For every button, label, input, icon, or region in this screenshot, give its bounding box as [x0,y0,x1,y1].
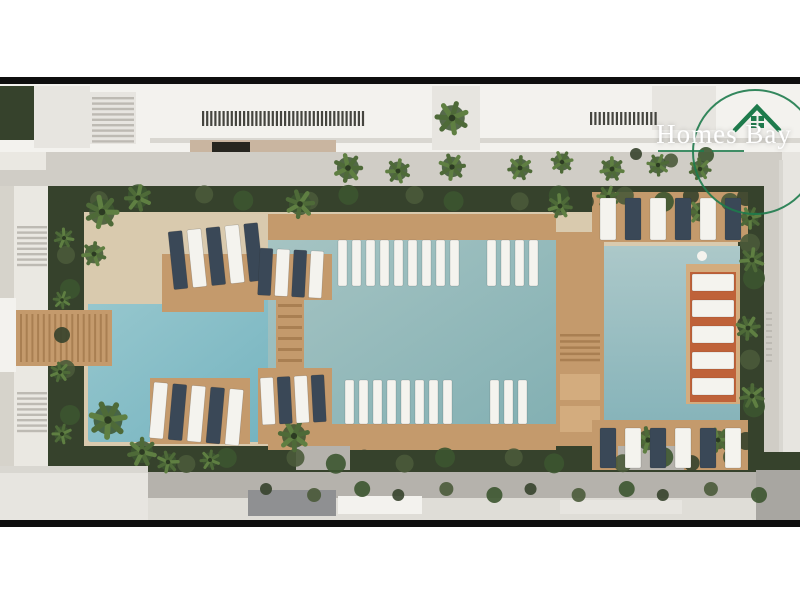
sun-lounger [650,198,666,240]
sun-lounger [625,198,641,240]
white-rooftop-2 [560,500,682,514]
bush [396,455,414,473]
sun-lounger [675,198,691,240]
sun-lounger [515,240,524,286]
bush [392,489,404,501]
walkway-top-left [0,152,46,170]
trees-top-left [0,86,34,140]
screenshot-root: Homes Bay [0,0,800,600]
bush [338,185,358,205]
bush [52,186,68,202]
sun-lounger [429,380,438,424]
bush [465,455,481,471]
sun-lounger [725,198,741,240]
sun-lounger [387,380,396,424]
bush [572,488,586,502]
bush [575,449,591,465]
sun-lounger [415,380,424,424]
sun-lounger [487,240,496,286]
sun-lounger-group-inpool-bottom-b [490,380,527,424]
bottom-margin [0,527,800,600]
sun-lounger [260,377,275,425]
bush [260,483,272,495]
sun-lounger [352,240,361,286]
sun-lounger [291,250,306,298]
bush [444,191,464,211]
bush [751,487,767,503]
pool-side-table [697,251,707,261]
sun-lounger [625,428,641,468]
sun-lounger [401,380,410,424]
bush [356,450,372,466]
central-deck-top [268,214,556,240]
sun-lounger [338,240,347,286]
bush [54,201,70,217]
bush [544,453,564,473]
sun-lounger [692,274,734,291]
bush [740,234,760,254]
bush [54,327,70,343]
sun-lounger [490,380,499,424]
small-building-top-left [34,86,90,148]
sun-lounger [700,198,716,240]
building-bottom-left [0,466,148,520]
bush [57,246,75,264]
sun-lounger [600,198,616,240]
bush [157,192,173,208]
bush [505,448,523,466]
bush [354,481,370,497]
sun-lounger [692,326,734,343]
sun-lounger [600,428,616,468]
white-rooftop-1 [338,496,422,514]
bush [247,456,263,472]
sun-lounger [422,240,431,286]
sun-lounger [725,428,741,468]
sun-lounger [504,380,513,424]
sun-lounger [275,249,290,297]
sun-lounger [408,240,417,286]
bush [578,194,594,210]
sun-lounger-group-left-notch [149,382,244,446]
bush [740,350,760,370]
sun-lounger [345,380,354,424]
sun-lounger [436,240,445,286]
bush [307,488,321,502]
stripe-texture [92,97,134,143]
bush [704,482,718,496]
bush [630,148,642,160]
sun-lounger [692,352,734,369]
sun-lounger [380,240,389,286]
bush [657,489,669,501]
building-bottom-left-roofline [0,466,148,473]
bush [486,487,502,503]
sun-lounger [501,240,510,286]
sun-lounger [359,380,368,424]
bush [60,405,80,425]
bush [439,482,453,496]
sun-lounger [692,300,734,317]
sun-lounger [692,378,734,395]
sun-lounger [650,428,666,468]
aerial-render-pool-complex [0,0,800,600]
sun-lounger [308,251,323,299]
rooftop-structure [248,490,336,516]
sun-lounger [294,376,309,424]
sun-lounger [450,240,459,286]
bush [233,191,253,211]
sun-lounger [311,375,326,423]
stripe-texture [766,312,772,362]
corner-roof [652,86,716,130]
sun-lounger [700,428,716,468]
render-area [0,84,800,521]
bush [177,455,195,473]
sun-lounger [277,376,292,424]
bush [367,193,383,209]
bush [406,186,424,204]
corner-vegetation [756,452,800,472]
bush [473,187,489,203]
sun-lounger-group-inpool-top-a [338,240,459,286]
sun-lounger [394,240,403,286]
bush [435,448,455,468]
bush [195,185,213,203]
bush [326,454,346,474]
walkway-landing [0,298,16,372]
sun-lounger [675,428,691,468]
sun-lounger [443,380,452,424]
sun-lounger [518,380,527,424]
bush [525,483,537,495]
separator-platform-1 [560,374,600,400]
bush [262,187,278,203]
bush [619,481,635,497]
sun-lounger [373,380,382,424]
sun-lounger [529,240,538,286]
bottom-frame-bar [0,520,800,527]
bush [54,441,70,457]
sun-lounger [258,248,273,296]
bush [511,192,529,210]
bush [217,448,237,468]
top-frame-bar [0,77,800,84]
top-margin [0,0,800,77]
sun-lounger [366,240,375,286]
sun-lounger-group-peninsula [168,223,264,290]
